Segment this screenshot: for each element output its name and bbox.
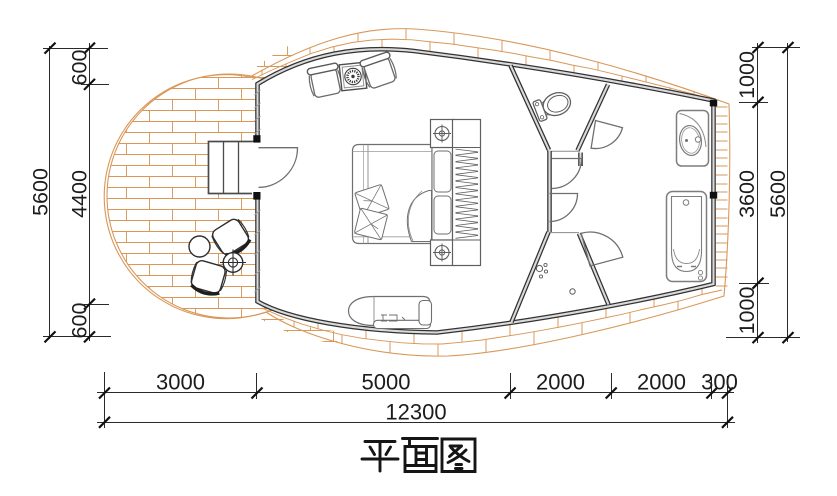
svg-text:5000: 5000 xyxy=(362,370,411,395)
svg-text:3600: 3600 xyxy=(735,170,759,218)
svg-text:5600: 5600 xyxy=(766,170,790,218)
svg-text:5600: 5600 xyxy=(29,168,53,216)
svg-text:2000: 2000 xyxy=(536,370,585,395)
svg-text:600: 600 xyxy=(68,50,92,86)
svg-text:3000: 3000 xyxy=(156,370,205,395)
svg-text:12300: 12300 xyxy=(385,400,446,425)
svg-text:1000: 1000 xyxy=(735,51,759,99)
svg-text:4400: 4400 xyxy=(68,170,92,218)
svg-text:1000: 1000 xyxy=(735,287,759,335)
svg-text:2000: 2000 xyxy=(637,370,686,395)
svg-text:300: 300 xyxy=(701,370,738,395)
svg-text:600: 600 xyxy=(68,303,92,339)
